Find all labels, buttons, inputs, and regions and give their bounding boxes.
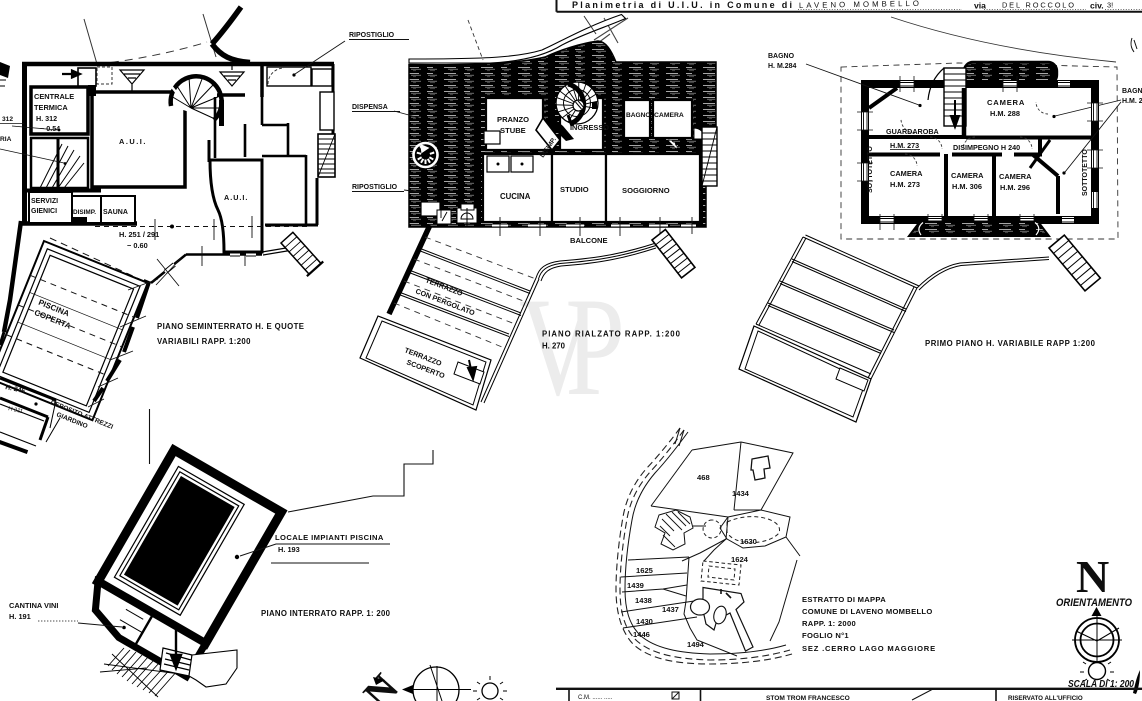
- svg-text:H. 191: H. 191: [9, 612, 31, 621]
- svg-text:N: N: [354, 665, 407, 701]
- svg-text:SEZ .CERRO LAGO MAGGIORE: SEZ .CERRO LAGO MAGGIORE: [802, 644, 936, 653]
- svg-text:TERMICA: TERMICA: [34, 103, 68, 112]
- svg-text:CAMERA: CAMERA: [987, 98, 1025, 107]
- svg-text:ESTRATTO DI MAPPA: ESTRATTO DI MAPPA: [802, 595, 886, 604]
- svg-text:civ.: civ.: [1090, 1, 1104, 11]
- svg-text:PIANO SEMINTERRATO H. E QUO: PIANO SEMINTERRATO H. E QUOTE: [157, 322, 304, 331]
- svg-text:H.M. 296: H.M. 296: [1000, 183, 1030, 192]
- svg-text:FOGLIO N°1: FOGLIO N°1: [802, 631, 849, 640]
- svg-text:LAVENO MOMBELLO: LAVENO MOMBELLO: [799, 0, 919, 10]
- svg-text:N: N: [1076, 551, 1109, 602]
- svg-text:SOGGIORNO: SOGGIORNO: [622, 186, 670, 195]
- svg-text:CENTRALE: CENTRALE: [34, 92, 74, 101]
- svg-text:1630: 1630: [740, 537, 757, 546]
- svg-text:STUDIO: STUDIO: [560, 185, 589, 194]
- svg-text:1439: 1439: [627, 581, 644, 590]
- svg-text:DISPENSA: DISPENSA: [352, 104, 388, 111]
- svg-text:DISIMP.: DISIMP.: [73, 209, 96, 216]
- svg-text:STOM TROM FRANCESCO: STOM TROM FRANCESCO: [766, 695, 850, 701]
- svg-text:H.M. 2: H.M. 2: [1122, 98, 1142, 105]
- svg-text:1438: 1438: [635, 596, 652, 605]
- svg-text:STUBE: STUBE: [500, 126, 526, 135]
- svg-text:1446: 1446: [633, 630, 650, 639]
- svg-text:H. 193: H. 193: [278, 545, 300, 554]
- svg-text:COMUNE DI LAVENO MOMBELLO: COMUNE DI LAVENO MOMBELLO: [802, 607, 933, 616]
- svg-text:3!: 3!: [1107, 1, 1113, 10]
- svg-text:1494: 1494: [687, 640, 705, 649]
- svg-text:CUCINA: CUCINA: [500, 192, 531, 201]
- svg-text:SAUNA: SAUNA: [103, 209, 128, 216]
- svg-text:BAGNO: BAGNO: [768, 53, 795, 60]
- svg-text:BAGNO: BAGNO: [626, 112, 651, 119]
- svg-text:SERVIZI: SERVIZI: [31, 198, 58, 205]
- svg-text:BAGN: BAGN: [1122, 88, 1142, 95]
- svg-text:H. M.284: H. M.284: [768, 63, 797, 70]
- svg-text:1437: 1437: [662, 605, 679, 614]
- svg-text:CAMERA: CAMERA: [654, 112, 684, 119]
- svg-text:VARIABILI RAPP. 1:200: VARIABILI RAPP. 1:200: [157, 337, 251, 346]
- svg-text:SOTTOTETTO: SOTTOTETTO: [1082, 149, 1089, 196]
- svg-text:H. 270: H. 270: [542, 342, 566, 351]
- svg-text:468: 468: [697, 473, 710, 482]
- svg-text:ORIENTAMENTO: ORIENTAMENTO: [1056, 597, 1132, 609]
- svg-text:RIPOSTIGLIO: RIPOSTIGLIO: [352, 184, 398, 191]
- svg-text:− 0.60: − 0.60: [127, 241, 148, 250]
- svg-text:A.U.I.: A.U.I.: [224, 193, 248, 202]
- svg-text:A.U.I.: A.U.I.: [119, 137, 147, 146]
- svg-text:LOCALE IMPIANTI PISCINA: LOCALE IMPIANTI PISCINA: [275, 533, 384, 542]
- svg-text:CAMERA: CAMERA: [951, 171, 984, 180]
- svg-text:1625: 1625: [636, 566, 654, 575]
- svg-text:RIA: RIA: [0, 136, 12, 143]
- svg-text:RAPP. 1: 2000: RAPP. 1: 2000: [802, 619, 856, 628]
- svg-text:DISIMPEGNO H 240: DISIMPEGNO H 240: [953, 143, 1020, 152]
- svg-text:SOTTOTETTO: SOTTOTETTO: [867, 146, 874, 193]
- svg-text:PRANZO: PRANZO: [497, 115, 529, 124]
- svg-text:CAMERA: CAMERA: [999, 172, 1032, 181]
- svg-text:via: via: [974, 1, 986, 11]
- svg-text:GIENICI: GIENICI: [31, 208, 57, 215]
- svg-text:PIANO RIALZATO RAPP. 1:200: PIANO RIALZATO RAPP. 1:200: [542, 330, 681, 339]
- svg-text:H.M. 273: H.M. 273: [890, 141, 919, 150]
- svg-text:1624: 1624: [731, 555, 749, 564]
- svg-text:BALCONE: BALCONE: [570, 236, 608, 245]
- svg-text:312: 312: [2, 116, 13, 123]
- svg-text:PRIMO PIANO H. VARIABILE RA: PRIMO PIANO H. VARIABILE RAPP 1:200: [925, 339, 1096, 348]
- svg-text:PIANO INTERRATO RAPP. 1: 20: PIANO INTERRATO RAPP. 1: 200: [261, 609, 391, 618]
- svg-text:DEL ROCCOLO: DEL ROCCOLO: [1002, 1, 1074, 10]
- svg-text:Planimetria di U.I.U. in Comun: Planimetria di U.I.U. in Comune di: [572, 0, 792, 10]
- svg-text:GUARDAROBA: GUARDAROBA: [886, 127, 939, 136]
- svg-text:H.M. 273: H.M. 273: [890, 180, 920, 189]
- svg-text:H. 251 / 291: H. 251 / 291: [119, 230, 159, 239]
- svg-text:H.M. 288: H.M. 288: [990, 109, 1020, 118]
- svg-text:1434: 1434: [732, 489, 750, 498]
- svg-text:RIPOSTIGLIO: RIPOSTIGLIO: [349, 32, 395, 39]
- svg-text:1430: 1430: [636, 617, 653, 626]
- svg-text:H. 312: H. 312: [36, 114, 57, 123]
- svg-text:H.M. 306: H.M. 306: [952, 182, 982, 191]
- svg-text:C.M. ...... .....: C.M. ...... .....: [578, 695, 613, 701]
- svg-text:RISERVATO ALL'UFFICIO: RISERVATO ALL'UFFICIO: [1008, 695, 1083, 701]
- svg-text:P: P: [565, 269, 625, 426]
- svg-text:CAMERA: CAMERA: [890, 169, 923, 178]
- svg-text:CANTINA VINI: CANTINA VINI: [9, 601, 58, 610]
